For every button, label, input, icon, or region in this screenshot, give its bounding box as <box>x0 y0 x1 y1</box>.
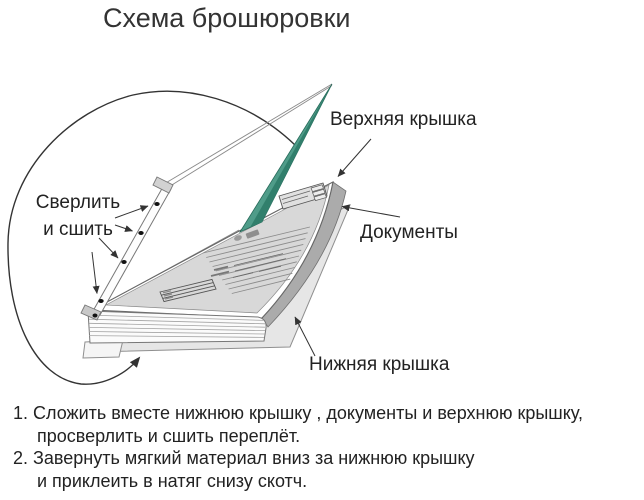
drill-arrow-4 <box>92 252 97 294</box>
binding-scheme-page: Схема брошюровки Сверлить и сшить Верхня… <box>0 0 644 500</box>
instructions-list: 1. Сложить вместе нижнюю крышку , докуме… <box>13 402 583 492</box>
drill-hole <box>154 202 159 206</box>
label-documents: Документы <box>360 221 458 245</box>
drill-hole <box>121 260 126 264</box>
leader-arrow-bottom-cover <box>295 317 315 356</box>
instruction-line: 1. Сложить вместе нижнюю крышку , докуме… <box>13 402 583 425</box>
page-title: Схема брошюровки <box>103 1 350 35</box>
drill-hole <box>93 314 98 318</box>
label-drill-line1: Сверлить <box>16 189 140 216</box>
label-bottom-cover: Нижняя крышка <box>309 353 449 377</box>
leader-arrow-documents <box>342 207 400 218</box>
label-drill-and-sew: Сверлить и сшить <box>16 189 140 243</box>
leader-arrow-top-cover <box>338 139 371 177</box>
label-drill-line2: и сшить <box>16 216 140 243</box>
instruction-line: просверлить и сшить переплёт. <box>13 425 583 448</box>
label-top-cover: Верхняя крышка <box>330 108 477 132</box>
drill-hole <box>98 299 103 303</box>
instruction-line: 2. Завернуть мягкий материал вниз за ниж… <box>13 447 583 470</box>
instruction-line: и приклеить в натяг снизу скотч. <box>13 470 583 493</box>
